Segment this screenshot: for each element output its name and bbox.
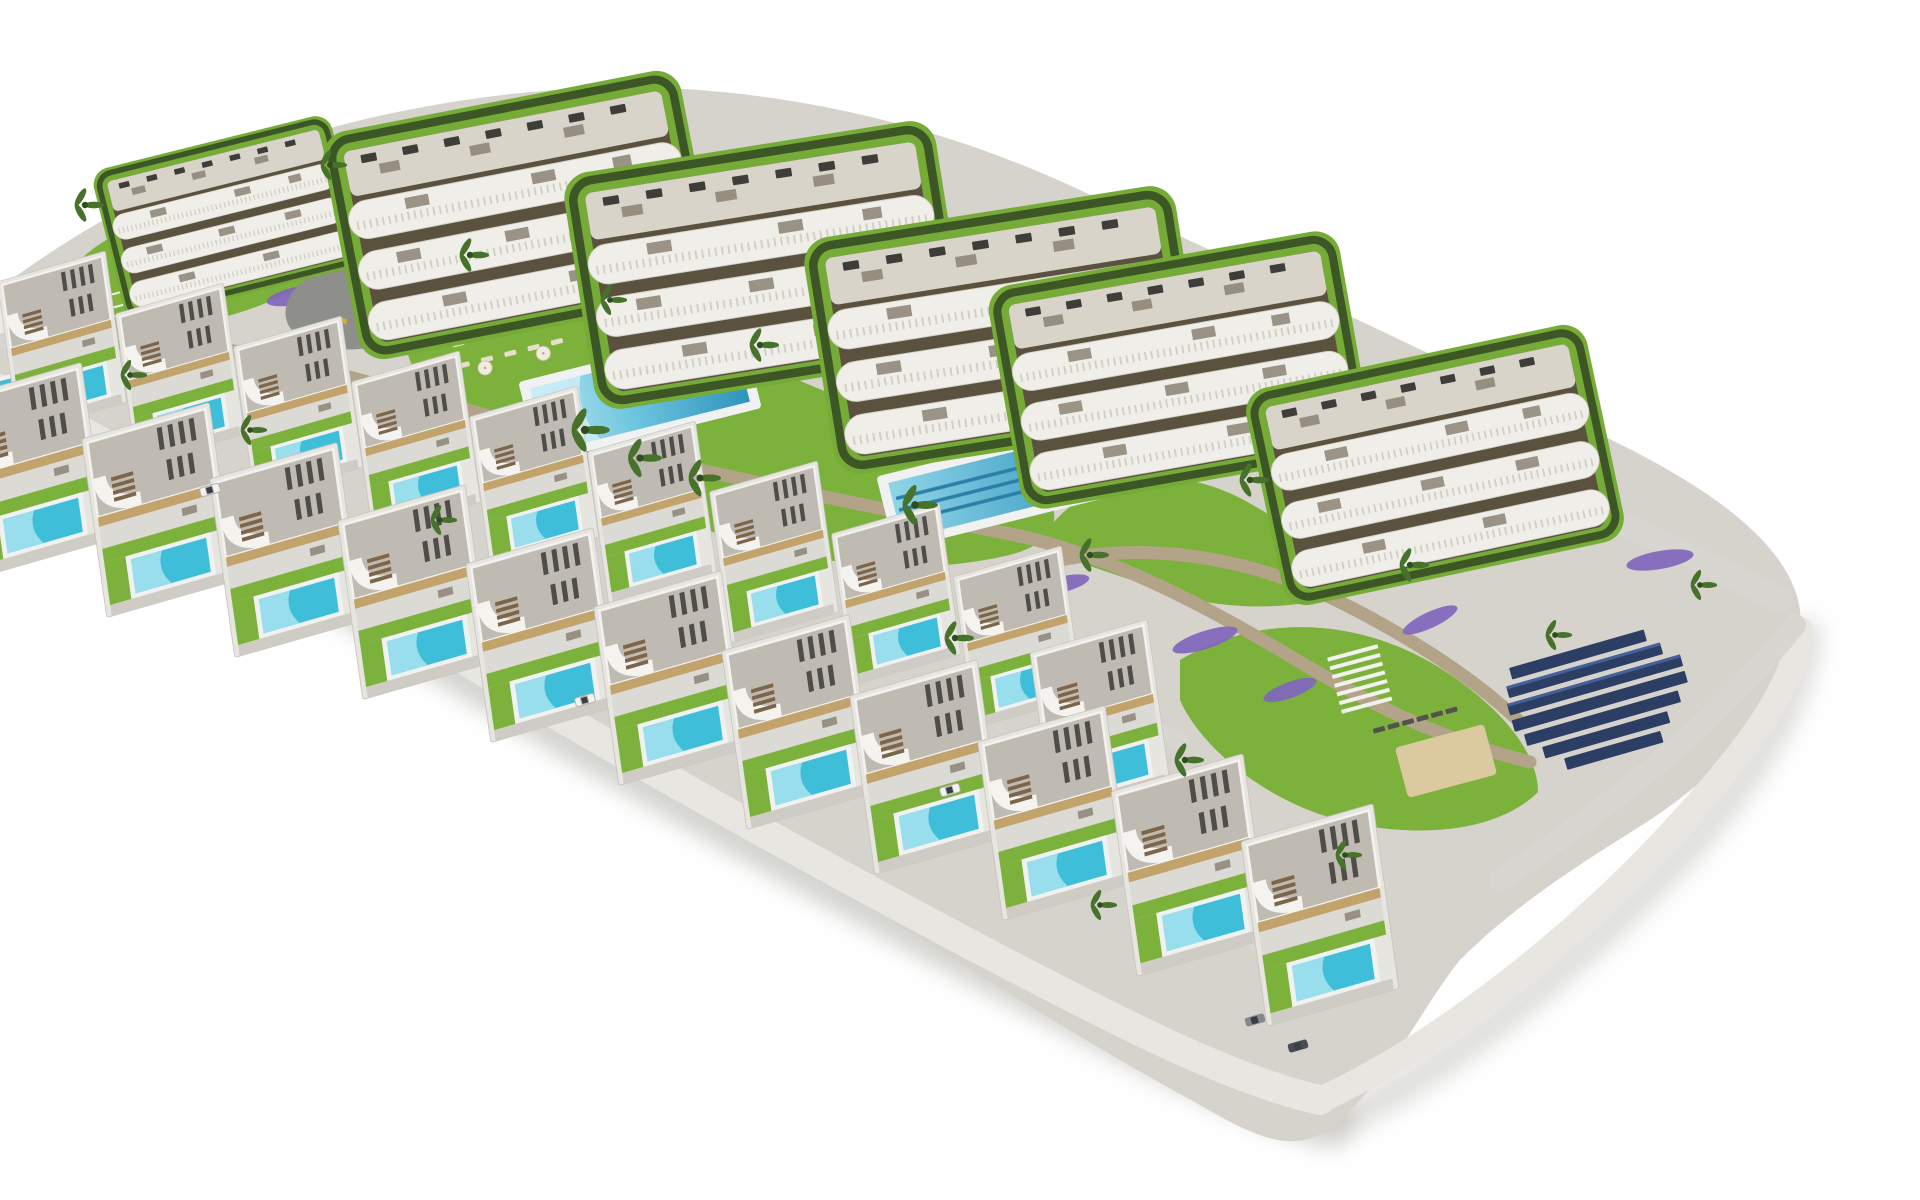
villa <box>210 442 363 657</box>
villa <box>82 402 235 617</box>
villa <box>722 614 875 829</box>
development-illustration <box>0 0 1920 1200</box>
villa <box>587 421 716 603</box>
villa <box>594 570 747 785</box>
villa <box>850 659 1003 874</box>
villa <box>338 484 491 699</box>
render-canvas <box>0 0 1920 1200</box>
villa <box>978 705 1131 920</box>
aerial-render <box>0 0 1920 1200</box>
villa <box>466 527 619 742</box>
villa <box>709 461 838 643</box>
villa <box>1241 804 1399 1027</box>
